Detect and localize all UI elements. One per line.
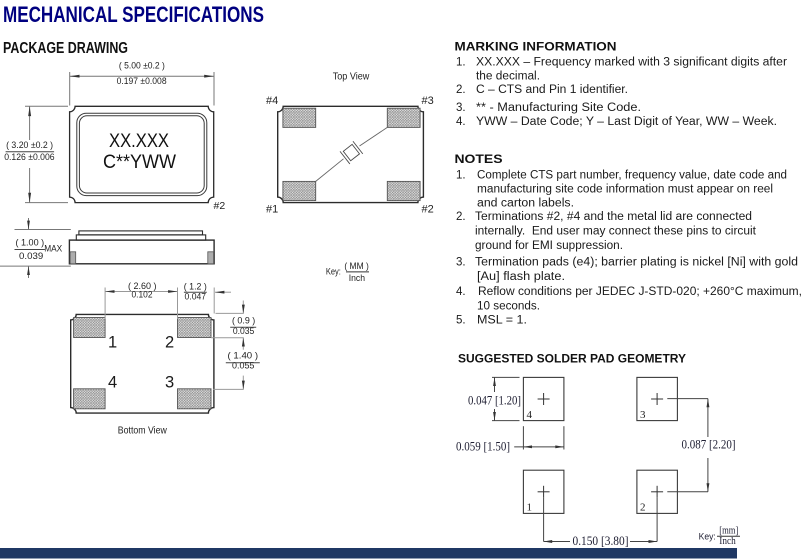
svg-text:0.047: 0.047 <box>185 292 207 302</box>
svg-text:Complete CTS part number, freq: Complete CTS part number, frequency valu… <box>477 170 787 182</box>
svg-text:Bottom View: Bottom View <box>118 425 167 437</box>
svg-text:3.: 3. <box>456 102 466 114</box>
svg-text:1.: 1. <box>456 170 466 182</box>
svg-text:( 5.00 ±0.2 ): ( 5.00 ±0.2 ) <box>119 61 165 71</box>
svg-text:#3: #3 <box>422 95 434 107</box>
svg-text:ground for EMI suppression.: ground for EMI suppression. <box>475 240 623 252</box>
svg-text:0.059 [1.50]: 0.059 [1.50] <box>456 439 510 454</box>
svg-text:( 0.9 ): ( 0.9 ) <box>232 316 255 326</box>
svg-text:0.055: 0.055 <box>232 361 254 371</box>
svg-text:#2: #2 <box>422 204 434 216</box>
svg-text:YWW – Date Code; Y – Last Digi: YWW – Date Code; Y – Last Digit of Year,… <box>476 116 777 128</box>
svg-text:Key:: Key: <box>326 266 341 276</box>
svg-text:C – CTS and Pin 1 identifier.: C – CTS and Pin 1 identifier. <box>476 84 628 96</box>
svg-text:3.: 3. <box>456 257 466 269</box>
svg-text:Inch: Inch <box>349 273 365 283</box>
svg-text:10 seconds.: 10 seconds. <box>477 301 540 313</box>
svg-text:0.126 ±0.006: 0.126 ±0.006 <box>4 152 54 162</box>
svg-text:Termination pads (e4); barrier: Termination pads (e4); barrier plating i… <box>475 257 798 269</box>
svg-text:Reflow conditions per JEDEC J-: Reflow conditions per JEDEC J-STD-020; +… <box>478 286 802 298</box>
svg-text:0.150 [3.80]: 0.150 [3.80] <box>573 533 629 548</box>
svg-text:internally. End user may conn: internally. End user may connect these p… <box>475 226 757 238</box>
svg-text:3: 3 <box>640 409 646 421</box>
svg-text:Top View: Top View <box>333 70 370 82</box>
svg-text:#4: #4 <box>266 95 278 107</box>
svg-text:2.: 2. <box>456 211 466 223</box>
svg-text:( MM ): ( MM ) <box>344 261 368 271</box>
svg-text:** - Manufacturing Site Code.: ** - Manufacturing Site Code. <box>476 102 641 114</box>
svg-text:4: 4 <box>108 374 117 392</box>
svg-text:#1: #1 <box>266 204 278 216</box>
svg-text:manufacturing site code inform: manufacturing site code information must… <box>477 184 773 196</box>
svg-text:2: 2 <box>640 502 646 514</box>
svg-text:XX.XXX: XX.XXX <box>109 131 169 152</box>
svg-text:0.197 ±0.008: 0.197 ±0.008 <box>117 76 167 86</box>
svg-text:MARKING INFORMATION: MARKING INFORMATION <box>455 40 617 54</box>
svg-text:MECHANICAL SPECIFICATIONS: MECHANICAL SPECIFICATIONS <box>3 2 264 27</box>
svg-text:and carton labels.: and carton labels. <box>477 197 574 209</box>
svg-text:1: 1 <box>108 334 117 352</box>
svg-text:[mm]: [mm] <box>719 526 738 537</box>
svg-text:4.: 4. <box>456 286 466 298</box>
svg-text:4.: 4. <box>456 116 466 128</box>
svg-text:SUGGESTED SOLDER PAD GEOMETRY: SUGGESTED SOLDER PAD GEOMETRY <box>458 352 686 366</box>
svg-text:2: 2 <box>165 334 174 352</box>
svg-text:2.: 2. <box>456 84 466 96</box>
svg-text:#2: #2 <box>214 200 226 212</box>
svg-text:0.039: 0.039 <box>19 251 43 261</box>
svg-text:( 1.00 ): ( 1.00 ) <box>15 237 44 247</box>
svg-text:[Au] flash plate.: [Au] flash plate. <box>477 271 565 283</box>
svg-text:XX.XXX – Frequency marked with: XX.XXX – Frequency marked with 3 signifi… <box>476 57 787 69</box>
svg-text:the decimal.: the decimal. <box>476 70 540 82</box>
svg-text:0.047 [1.20]: 0.047 [1.20] <box>468 393 521 408</box>
svg-text:PACKAGE DRAWING: PACKAGE DRAWING <box>3 40 128 57</box>
svg-text:1: 1 <box>527 502 533 514</box>
svg-text:0.102: 0.102 <box>132 289 153 299</box>
svg-text:Key:: Key: <box>699 531 716 541</box>
svg-text:MSL = 1.: MSL = 1. <box>477 314 527 326</box>
svg-text:( 3.20 ±0.2 ): ( 3.20 ±0.2 ) <box>6 140 53 150</box>
svg-text:( 1.2 ): ( 1.2 ) <box>184 281 207 291</box>
svg-text:0.087 [2.20]: 0.087 [2.20] <box>682 437 736 452</box>
svg-text:Terminations #2, #4 and the me: Terminations #2, #4 and the metal lid ar… <box>475 211 752 223</box>
svg-text:Inch: Inch <box>719 536 736 547</box>
svg-text:5.: 5. <box>456 314 466 326</box>
svg-text:3: 3 <box>165 374 174 392</box>
svg-text:1.: 1. <box>456 57 466 69</box>
svg-text:( 1.40 ): ( 1.40 ) <box>228 351 259 361</box>
svg-text:NOTES: NOTES <box>455 152 503 166</box>
svg-text:C**YWW: C**YWW <box>103 152 176 173</box>
svg-text:MAX: MAX <box>44 243 62 253</box>
svg-text:4: 4 <box>527 409 533 421</box>
